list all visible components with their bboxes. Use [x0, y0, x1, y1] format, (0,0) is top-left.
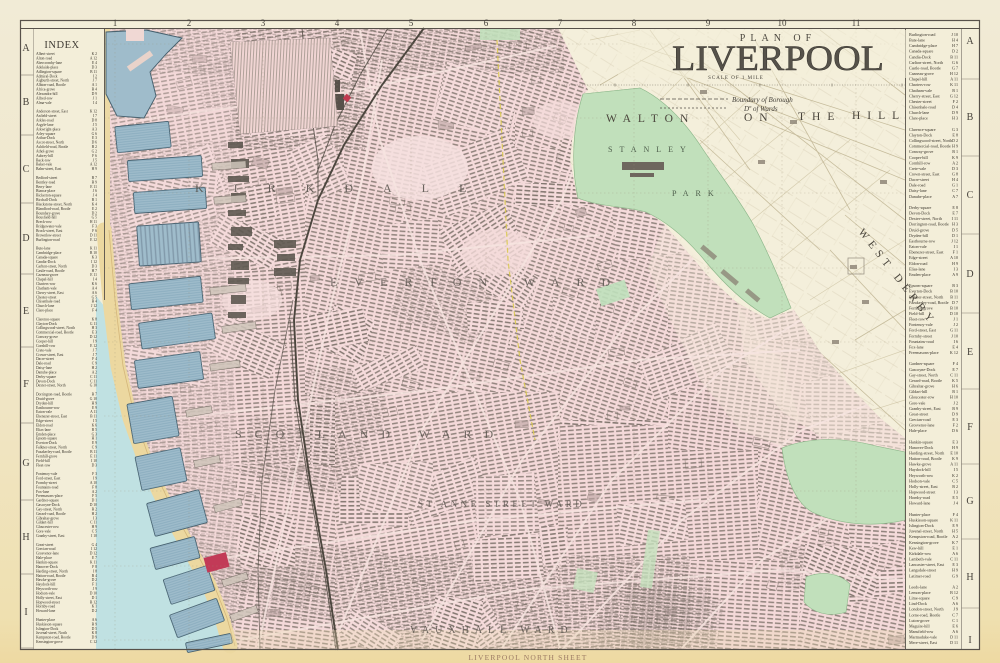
- svg-text:C: C: [967, 190, 974, 201]
- svg-text:Eldon-road: Eldon-road: [909, 261, 927, 266]
- svg-text:H 9: H 9: [952, 568, 958, 573]
- svg-text:Hawke-grove: Hawke-grove: [909, 462, 931, 467]
- svg-text:SCALE OF 1 MILE: SCALE OF 1 MILE: [708, 76, 764, 81]
- svg-text:Leeds-lane: Leeds-lane: [909, 584, 927, 589]
- svg-text:Crete-vale: Crete-vale: [909, 166, 926, 171]
- svg-text:Alma-vale: Alma-vale: [36, 101, 52, 105]
- svg-text:F 5: F 5: [92, 494, 97, 498]
- svg-text:I 9: I 9: [93, 340, 97, 344]
- svg-text:Hornby-road: Hornby-road: [909, 495, 930, 500]
- svg-text:G 1: G 1: [952, 183, 958, 188]
- svg-text:Crete-vale: Crete-vale: [36, 348, 52, 352]
- svg-text:H 10: H 10: [950, 395, 958, 400]
- svg-text:Mansfield-row: Mansfield-row: [909, 629, 933, 634]
- svg-text:G 10: G 10: [90, 384, 97, 388]
- svg-text:I 12: I 12: [91, 547, 97, 551]
- svg-text:Baker-vale: Baker-vale: [36, 163, 52, 167]
- svg-text:G: G: [22, 458, 29, 469]
- svg-text:Alfred-row: Alfred-row: [36, 96, 53, 100]
- svg-text:INDEX: INDEX: [44, 40, 79, 51]
- svg-text:Eldon-road: Eldon-road: [36, 424, 53, 428]
- svg-text:B: B: [967, 112, 974, 123]
- svg-text:Adelaide-place: Adelaide-place: [36, 66, 59, 70]
- svg-text:Gloucester-row: Gloucester-row: [36, 525, 59, 529]
- svg-text:Bute-lane: Bute-lane: [36, 247, 51, 251]
- svg-text:Danube-place: Danube-place: [36, 370, 57, 374]
- svg-text:D 12: D 12: [90, 552, 97, 556]
- svg-text:Athol-grove: Athol-grove: [36, 149, 54, 153]
- svg-text:Elias-lane: Elias-lane: [36, 428, 51, 432]
- svg-text:D 8: D 8: [92, 119, 98, 123]
- svg-text:Berry-lane: Berry-lane: [36, 185, 52, 189]
- svg-text:A 6: A 6: [952, 601, 958, 606]
- svg-text:I: I: [968, 635, 971, 646]
- svg-text:PARK: PARK: [672, 189, 721, 198]
- svg-text:Cazneau-grove: Cazneau-grove: [909, 71, 934, 76]
- svg-text:3: 3: [261, 18, 266, 28]
- svg-text:G: G: [966, 496, 973, 507]
- svg-text:Fox-lane: Fox-lane: [909, 345, 924, 350]
- svg-text:E 12: E 12: [90, 344, 97, 348]
- svg-text:Fernhill-grove: Fernhill-grove: [36, 454, 58, 458]
- svg-text:H 9: H 9: [92, 525, 98, 529]
- svg-text:E 3: E 3: [92, 331, 97, 335]
- svg-text:D 1: D 1: [92, 596, 98, 600]
- svg-text:D 9: D 9: [952, 110, 958, 115]
- svg-text:D 2: D 2: [92, 211, 98, 215]
- svg-text:A 4: A 4: [92, 287, 97, 291]
- svg-text:Cazneau-grove: Cazneau-grove: [36, 273, 59, 277]
- svg-text:Hanover-Dock: Hanover-Dock: [36, 565, 58, 569]
- svg-text:D 5: D 5: [952, 227, 958, 232]
- svg-text:Cooper-hill: Cooper-hill: [36, 340, 53, 344]
- svg-text:A 6: A 6: [952, 551, 958, 556]
- svg-text:Maguire-hill: Maguire-hill: [909, 624, 931, 629]
- svg-text:J 10: J 10: [951, 32, 958, 37]
- svg-text:2: 2: [187, 18, 192, 28]
- svg-text:K 2: K 2: [952, 473, 958, 478]
- svg-text:B 4: B 4: [92, 300, 97, 304]
- svg-text:H 9: H 9: [952, 144, 958, 149]
- svg-text:Clarence-square: Clarence-square: [36, 317, 60, 321]
- svg-text:E 3: E 3: [952, 417, 958, 422]
- svg-text:C 9: C 9: [92, 362, 97, 366]
- svg-text:E 2: E 2: [92, 207, 97, 211]
- svg-text:1: 1: [113, 18, 118, 28]
- svg-text:F 4: F 4: [92, 357, 97, 361]
- svg-text:6: 6: [484, 18, 489, 28]
- svg-text:B 10: B 10: [950, 305, 958, 310]
- svg-text:C 11: C 11: [950, 557, 958, 562]
- svg-text:H 1: H 1: [92, 437, 98, 441]
- svg-text:Fox-lane: Fox-lane: [36, 490, 49, 494]
- svg-text:Devon-Dock: Devon-Dock: [36, 379, 55, 383]
- svg-text:Clare-place: Clare-place: [909, 116, 928, 121]
- svg-text:G 10: G 10: [90, 397, 97, 401]
- svg-text:Epsom-square: Epsom-square: [36, 437, 57, 441]
- svg-text:Alton-road: Alton-road: [36, 57, 52, 61]
- svg-text:A 1: A 1: [92, 83, 97, 87]
- svg-text:Hunter-place: Hunter-place: [909, 512, 930, 517]
- svg-text:A 10: A 10: [90, 481, 97, 485]
- svg-text:Gibraltar-grove: Gibraltar-grove: [909, 384, 935, 389]
- svg-text:B 12: B 12: [90, 600, 97, 604]
- svg-text:Marmaduke-vale: Marmaduke-vale: [909, 635, 937, 640]
- svg-text:G 7: G 7: [952, 66, 958, 71]
- svg-text:D 6: D 6: [92, 141, 98, 145]
- svg-text:G 12: G 12: [950, 93, 958, 98]
- svg-text:F 4: F 4: [953, 512, 958, 517]
- svg-text:Burlington-road: Burlington-road: [909, 32, 935, 37]
- svg-text:A 2: A 2: [952, 534, 958, 539]
- svg-text:J 4: J 4: [93, 194, 97, 198]
- svg-text:I 1: I 1: [954, 244, 958, 249]
- svg-text:E 8: E 8: [952, 205, 958, 210]
- svg-text:STANLEY: STANLEY: [608, 145, 693, 154]
- svg-text:Chisenhale-road: Chisenhale-road: [909, 105, 936, 110]
- svg-text:D 10: D 10: [950, 311, 958, 316]
- svg-text:8: 8: [632, 18, 637, 28]
- svg-text:K 5: K 5: [952, 378, 958, 383]
- svg-text:K 3: K 3: [92, 256, 98, 260]
- svg-text:G 5: G 5: [92, 295, 98, 299]
- svg-text:Hanover-Dock: Hanover-Dock: [909, 445, 934, 450]
- svg-text:I 4: I 4: [93, 101, 97, 105]
- svg-text:J 9: J 9: [953, 607, 958, 612]
- svg-text:Dale-road: Dale-road: [36, 362, 51, 366]
- svg-text:Langsdale-street: Langsdale-street: [909, 568, 937, 573]
- svg-text:K 8: K 8: [92, 631, 98, 635]
- svg-text:Church-lane: Church-lane: [909, 110, 929, 115]
- svg-text:G 11: G 11: [90, 322, 97, 326]
- svg-text:Candia-Dock: Candia-Dock: [909, 54, 932, 59]
- svg-text:B 9: B 9: [92, 180, 97, 184]
- svg-text:E 8: E 8: [952, 132, 958, 137]
- svg-text:Conway-grove: Conway-grove: [36, 335, 58, 339]
- svg-text:Dale-road: Dale-road: [909, 183, 925, 188]
- svg-text:I: I: [24, 607, 27, 618]
- svg-text:I 3: I 3: [954, 266, 958, 271]
- svg-text:E 12: E 12: [90, 238, 97, 242]
- svg-text:K 11: K 11: [90, 561, 97, 565]
- svg-text:Latimer-road: Latimer-road: [909, 573, 931, 578]
- svg-text:Cornhill-row: Cornhill-row: [36, 344, 56, 348]
- svg-text:Alexandra-hill: Alexandra-hill: [36, 92, 58, 96]
- svg-text:Hale-place: Hale-place: [36, 556, 52, 560]
- svg-text:H 12: H 12: [950, 71, 958, 76]
- svg-text:E 7: E 7: [92, 556, 97, 560]
- svg-text:J 7: J 7: [93, 79, 97, 83]
- svg-text:Gascoyne-Dock: Gascoyne-Dock: [909, 367, 936, 372]
- svg-text:Druid-grove: Druid-grove: [36, 397, 55, 401]
- svg-text:J 4: J 4: [953, 501, 958, 506]
- svg-text:H 3: H 3: [952, 116, 958, 121]
- svg-text:K 6: K 6: [92, 282, 98, 286]
- svg-text:F 6: F 6: [92, 154, 97, 158]
- svg-text:D 11: D 11: [90, 233, 97, 237]
- svg-text:Edge-street: Edge-street: [909, 255, 929, 260]
- svg-text:K 6: K 6: [92, 424, 98, 428]
- svg-text:Formby-street: Formby-street: [36, 481, 57, 485]
- svg-text:G 5: G 5: [92, 216, 98, 220]
- svg-text:Eaton-vale: Eaton-vale: [909, 244, 927, 249]
- svg-text:C 11: C 11: [90, 521, 97, 525]
- svg-text:SCOTLAND WARD: SCOTLAND WARD: [235, 427, 506, 441]
- svg-text:F 2: F 2: [953, 99, 958, 104]
- svg-text:Grecian-road: Grecian-road: [36, 547, 56, 551]
- svg-text:I 12: I 12: [91, 260, 97, 264]
- svg-text:K 2: K 2: [92, 52, 98, 56]
- svg-text:Bickerton-square: Bickerton-square: [36, 194, 62, 198]
- svg-text:J 12: J 12: [951, 239, 958, 244]
- svg-text:E 4: E 4: [952, 345, 958, 350]
- svg-text:J 7: J 7: [93, 348, 97, 352]
- svg-text:Islington-Dock: Islington-Dock: [36, 627, 58, 631]
- svg-text:D 2: D 2: [92, 609, 98, 613]
- svg-text:I 10: I 10: [91, 459, 97, 463]
- svg-text:Charters-row: Charters-row: [909, 82, 931, 87]
- svg-text:I 8: I 8: [93, 569, 97, 573]
- svg-text:B 10: B 10: [90, 251, 97, 255]
- svg-text:Eastbourne-row: Eastbourne-row: [36, 406, 60, 410]
- svg-text:G 6: G 6: [952, 60, 958, 65]
- svg-text:H 9: H 9: [952, 261, 958, 266]
- svg-text:ST ANNE STREET WARD: ST ANNE STREET WARD: [418, 499, 585, 509]
- svg-text:H 7: H 7: [92, 269, 98, 273]
- svg-text:Emden-place: Emden-place: [36, 432, 56, 436]
- svg-text:Grosvenor-lane: Grosvenor-lane: [909, 423, 935, 428]
- svg-text:Gardner-square: Gardner-square: [909, 361, 935, 366]
- svg-text:Clare-place: Clare-place: [36, 309, 53, 313]
- svg-text:Gore-vale: Gore-vale: [909, 400, 926, 405]
- svg-text:H 2: H 2: [92, 366, 98, 370]
- svg-text:B 1: B 1: [952, 88, 958, 93]
- svg-text:Gore-vale: Gore-vale: [36, 530, 51, 534]
- svg-text:I 7: I 7: [93, 114, 97, 118]
- svg-text:A 6: A 6: [92, 291, 97, 295]
- svg-text:Heyworth-row: Heyworth-row: [36, 587, 58, 591]
- svg-text:Lemon-place: Lemon-place: [909, 590, 931, 595]
- svg-text:Bedford-street: Bedford-street: [36, 176, 57, 180]
- svg-text:B 7: B 7: [92, 393, 97, 397]
- svg-text:A 12: A 12: [90, 163, 97, 167]
- svg-text:I 2: I 2: [93, 74, 97, 78]
- svg-text:A 3: A 3: [92, 127, 97, 131]
- svg-text:Luton-grove: Luton-grove: [909, 618, 930, 623]
- svg-text:B 9: B 9: [952, 406, 958, 411]
- svg-text:Clayton-Dock: Clayton-Dock: [36, 322, 57, 326]
- svg-text:Aubrey-hill: Aubrey-hill: [36, 154, 53, 158]
- svg-text:J 6: J 6: [93, 189, 97, 193]
- svg-text:B 2: B 2: [952, 484, 958, 489]
- svg-text:C 11: C 11: [90, 379, 97, 383]
- svg-text:Dryden-hill: Dryden-hill: [909, 233, 929, 238]
- svg-text:E 3: E 3: [92, 136, 97, 140]
- svg-text:I 5: I 5: [954, 467, 958, 472]
- svg-text:B 1: B 1: [92, 198, 97, 202]
- svg-text:J 2: J 2: [953, 322, 958, 327]
- svg-text:D 3: D 3: [92, 66, 98, 70]
- svg-text:Chester-street: Chester-street: [36, 295, 56, 299]
- svg-text:H 9: H 9: [92, 401, 98, 405]
- svg-text:F 3: F 3: [92, 472, 97, 476]
- svg-text:Hopwood-street: Hopwood-street: [36, 600, 60, 604]
- svg-text:I 5: I 5: [93, 419, 97, 423]
- svg-text:E 7: E 7: [952, 367, 958, 372]
- svg-text:D 3: D 3: [952, 166, 958, 171]
- svg-text:Kew-hill: Kew-hill: [909, 545, 924, 550]
- svg-text:4: 4: [335, 18, 340, 28]
- svg-text:B 4: B 4: [92, 574, 97, 578]
- svg-text:I 3: I 3: [954, 490, 958, 495]
- svg-text:ON: ON: [744, 112, 775, 124]
- svg-text:D 10: D 10: [90, 591, 97, 595]
- svg-text:C 12: C 12: [90, 640, 97, 644]
- svg-text:Chapel-hill: Chapel-hill: [909, 77, 928, 82]
- svg-text:H: H: [966, 572, 973, 583]
- svg-text:Hopwood-street: Hopwood-street: [909, 490, 936, 495]
- svg-text:B: B: [23, 97, 30, 108]
- svg-text:Devon-Dock: Devon-Dock: [909, 211, 931, 216]
- svg-text:Howard-lane: Howard-lane: [909, 501, 931, 506]
- svg-text:H 9: H 9: [952, 445, 958, 450]
- svg-text:EVERTON WARD: EVERTON WARD: [330, 275, 627, 289]
- svg-text:G 8: G 8: [952, 172, 958, 177]
- svg-text:D 9: D 9: [952, 411, 958, 416]
- svg-text:Lind-Dock: Lind-Dock: [909, 601, 928, 606]
- svg-text:Danube-place: Danube-place: [909, 194, 932, 199]
- svg-text:D 5: D 5: [92, 627, 98, 631]
- svg-text:F 8: F 8: [92, 485, 97, 489]
- svg-text:Breck-row: Breck-row: [36, 220, 52, 224]
- svg-text:Everton-Dock: Everton-Dock: [36, 441, 57, 445]
- svg-text:B 11: B 11: [90, 70, 97, 74]
- svg-text:Dacre-street: Dacre-street: [909, 177, 930, 182]
- svg-text:10: 10: [778, 18, 788, 28]
- svg-text:E 11: E 11: [90, 185, 97, 189]
- svg-text:K 1: K 1: [92, 605, 98, 609]
- svg-text:E 11: E 11: [90, 273, 97, 277]
- svg-text:B 11: B 11: [90, 415, 97, 419]
- svg-text:F 4: F 4: [953, 361, 958, 366]
- svg-text:Chapel-hill: Chapel-hill: [36, 278, 53, 282]
- svg-text:F 6: F 6: [92, 229, 97, 233]
- svg-text:F 1: F 1: [953, 250, 958, 255]
- svg-text:Emden-place: Emden-place: [909, 272, 931, 277]
- svg-text:B 2: B 2: [92, 145, 97, 149]
- svg-text:KIRKDALE: KIRKDALE: [195, 181, 496, 195]
- svg-text:D 11: D 11: [950, 635, 958, 640]
- svg-text:Clayton-Dock: Clayton-Dock: [909, 132, 933, 137]
- svg-text:B 11: B 11: [90, 450, 97, 454]
- svg-text:Dryden-hill: Dryden-hill: [36, 401, 53, 405]
- svg-text:Back-row: Back-row: [36, 158, 51, 162]
- svg-text:Cornhill-row: Cornhill-row: [909, 160, 930, 165]
- svg-text:F: F: [967, 422, 973, 433]
- svg-text:J 10: J 10: [951, 333, 958, 338]
- svg-text:Arkles-road: Arkles-road: [36, 119, 54, 123]
- svg-text:Derby-square: Derby-square: [36, 375, 56, 379]
- svg-text:Candia-Dock: Candia-Dock: [36, 260, 56, 264]
- svg-text:Bianca-place: Bianca-place: [36, 189, 56, 193]
- svg-text:Arthur-Dock: Arthur-Dock: [36, 136, 55, 140]
- svg-text:Haydock-hill: Haydock-hill: [36, 583, 55, 587]
- svg-text:Formby-street: Formby-street: [909, 333, 933, 338]
- svg-text:J 9: J 9: [93, 587, 97, 591]
- svg-text:Adlington-square: Adlington-square: [36, 70, 62, 74]
- svg-text:Fleet-row: Fleet-row: [36, 463, 51, 467]
- svg-text:Kirkdale-row: Kirkdale-row: [909, 551, 931, 556]
- svg-text:Druid-grove: Druid-grove: [909, 227, 929, 232]
- svg-text:Lime-square: Lime-square: [909, 596, 930, 601]
- svg-text:H 4: H 4: [952, 38, 958, 43]
- svg-text:B 3: B 3: [952, 283, 958, 288]
- svg-text:E 9: E 9: [952, 523, 958, 528]
- svg-text:VAUXHALL WARD: VAUXHALL WARD: [410, 625, 574, 636]
- svg-text:B 2: B 2: [92, 508, 97, 512]
- svg-text:Bentley-road: Bentley-road: [36, 180, 55, 184]
- svg-text:D 6: D 6: [952, 428, 958, 433]
- svg-text:C 9: C 9: [92, 446, 97, 450]
- svg-text:Howard-lane: Howard-lane: [36, 609, 56, 613]
- svg-text:Clarence-square: Clarence-square: [909, 127, 936, 132]
- svg-text:F 3: F 3: [92, 225, 97, 229]
- svg-text:Gascoyne-Dock: Gascoyne-Dock: [36, 503, 60, 507]
- svg-text:Heyworth-row: Heyworth-row: [909, 473, 933, 478]
- svg-text:Lambeth-vale: Lambeth-vale: [909, 557, 932, 562]
- svg-text:K 11: K 11: [950, 518, 958, 523]
- svg-text:I 6: I 6: [954, 339, 958, 344]
- svg-text:Hankin-square: Hankin-square: [36, 561, 58, 565]
- svg-text:A 12: A 12: [90, 57, 97, 61]
- svg-text:D 10: D 10: [90, 503, 97, 507]
- svg-text:A 10: A 10: [950, 255, 958, 260]
- svg-text:Fountains-road: Fountains-road: [909, 339, 934, 344]
- svg-text:Hornby-road: Hornby-road: [36, 605, 55, 609]
- svg-text:A 7: A 7: [952, 194, 958, 199]
- svg-text:K 4: K 4: [92, 203, 98, 207]
- svg-text:J 1: J 1: [93, 96, 97, 100]
- svg-text:A 11: A 11: [950, 77, 958, 82]
- svg-text:Grosvenor-lane: Grosvenor-lane: [36, 552, 59, 556]
- svg-text:E: E: [23, 306, 29, 317]
- svg-text:B 9: B 9: [92, 622, 97, 626]
- svg-text:C 5: C 5: [952, 478, 958, 483]
- svg-text:Gildart-hill: Gildart-hill: [36, 521, 53, 525]
- svg-text:Argyle-lane: Argyle-lane: [36, 123, 54, 127]
- svg-text:G 3: G 3: [92, 432, 98, 436]
- svg-text:I 9: I 9: [93, 477, 97, 481]
- svg-text:D 9: D 9: [92, 92, 98, 96]
- svg-text:H 6: H 6: [952, 384, 958, 389]
- svg-text:LIVERPOOL NORTH SHEET: LIVERPOOL NORTH SHEET: [468, 653, 587, 662]
- svg-text:Bute-lane: Bute-lane: [909, 38, 925, 43]
- svg-text:A 2: A 2: [92, 490, 97, 494]
- svg-text:Field-hill: Field-hill: [36, 459, 50, 463]
- svg-text:Africa-grove: Africa-grove: [36, 88, 55, 92]
- svg-text:C 5: C 5: [92, 530, 97, 534]
- svg-text:D 1: D 1: [92, 499, 98, 503]
- svg-text:B 11: B 11: [950, 54, 958, 59]
- svg-text:H 7: H 7: [952, 43, 958, 48]
- svg-text:A: A: [966, 36, 974, 47]
- svg-text:K 12: K 12: [950, 350, 958, 355]
- svg-text:G 11: G 11: [950, 328, 958, 333]
- svg-text:Freemasons-place: Freemasons-place: [909, 350, 939, 355]
- svg-text:Brownlow-street: Brownlow-street: [36, 233, 61, 237]
- svg-text:Gibraltar-grove: Gibraltar-grove: [36, 516, 59, 520]
- svg-text:B 10: B 10: [950, 289, 958, 294]
